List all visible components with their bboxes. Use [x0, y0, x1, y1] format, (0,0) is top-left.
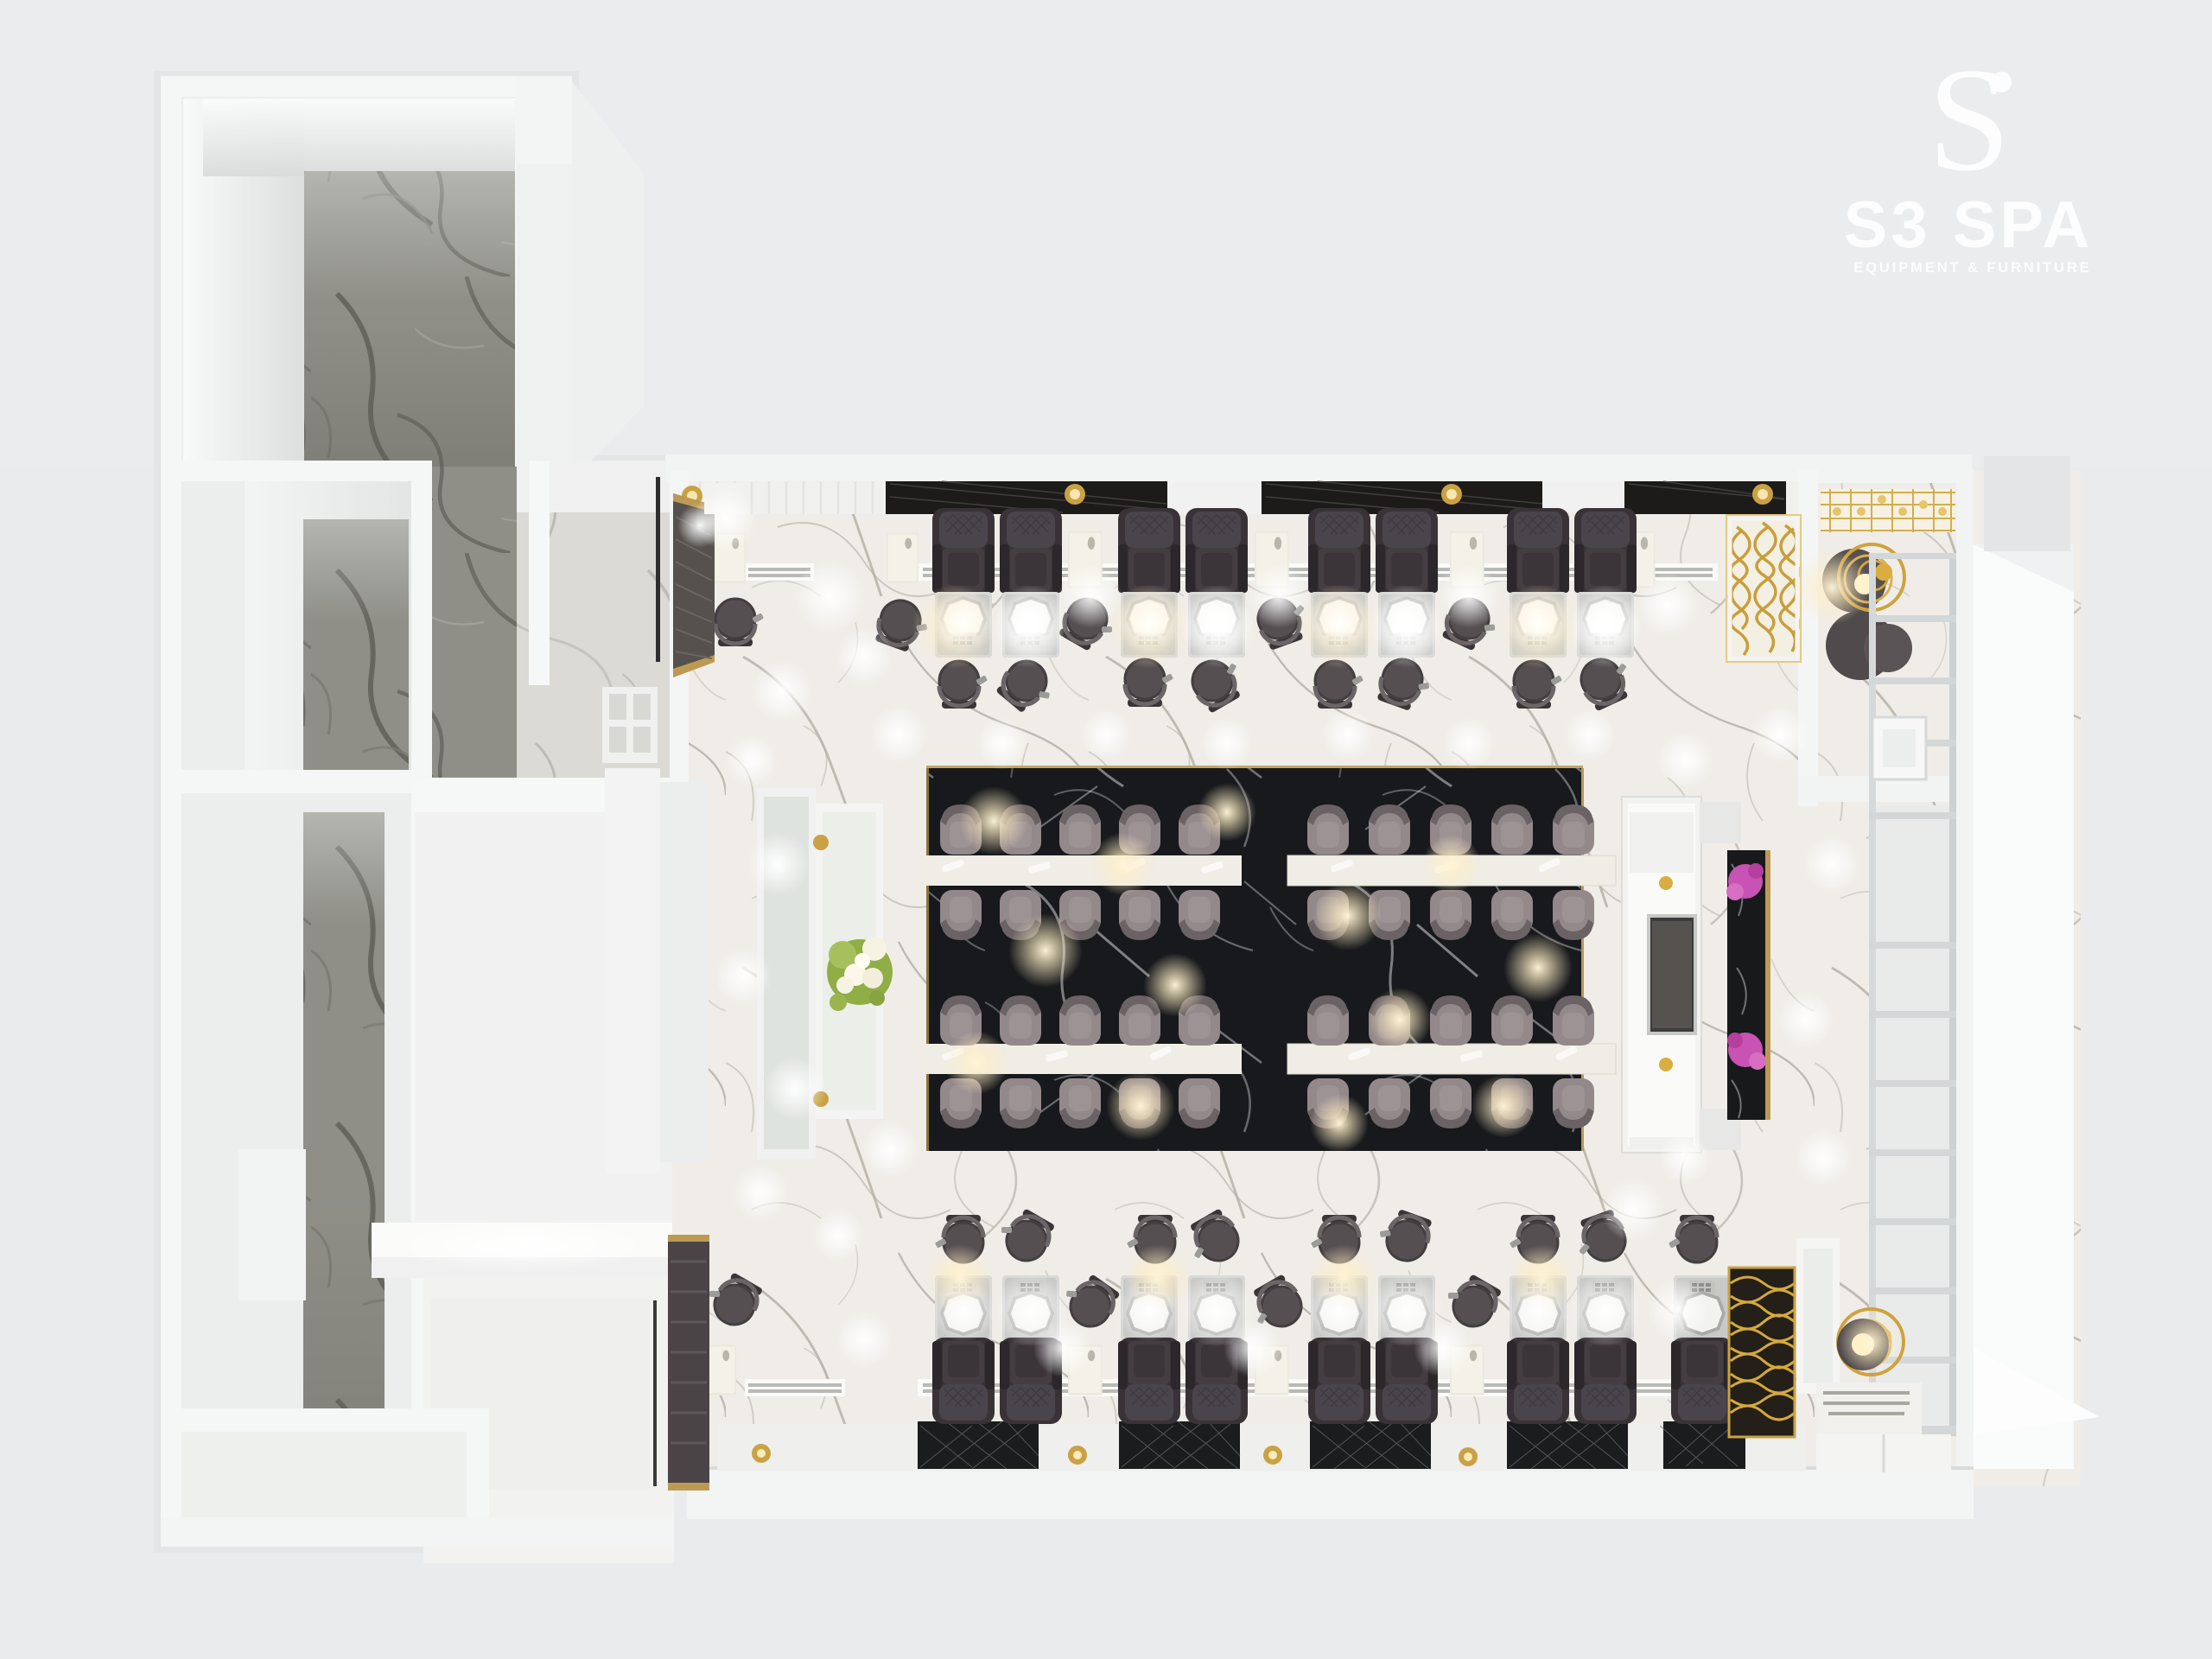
svg-text:S3 SPA: S3 SPA: [1844, 188, 2094, 262]
svg-text:S: S: [1928, 38, 2011, 202]
svg-text:EQUIPMENT & FURNITURE: EQUIPMENT & FURNITURE: [1853, 260, 2091, 276]
